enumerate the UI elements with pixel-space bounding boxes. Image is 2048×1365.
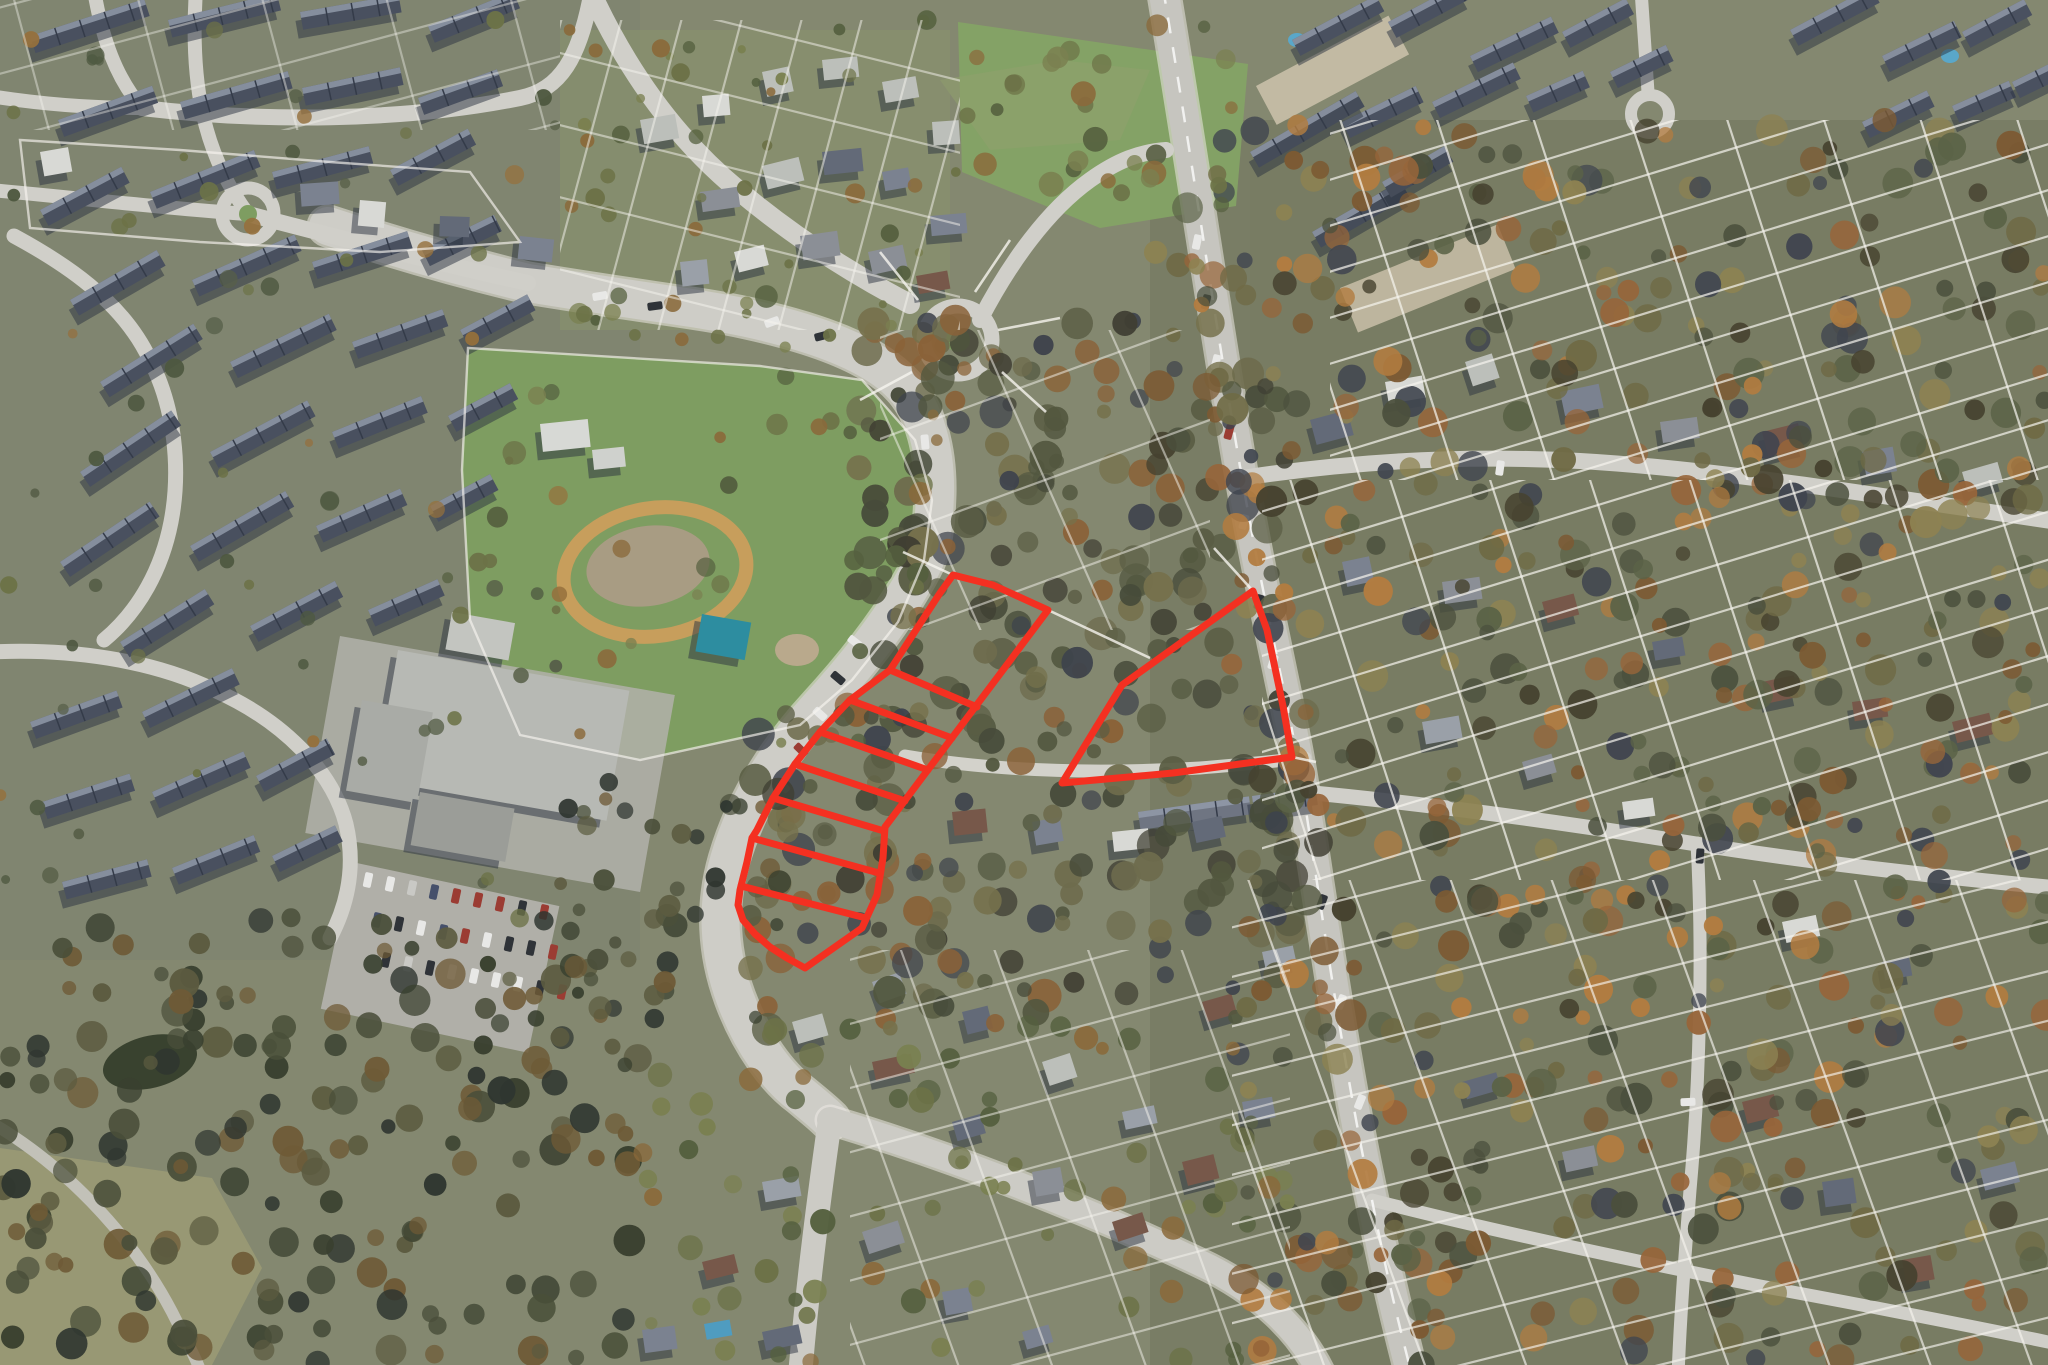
school-building (540, 419, 591, 452)
house-roof (952, 808, 988, 835)
house-roof (942, 1287, 973, 1315)
house-roof (1032, 1167, 1065, 1197)
house-roof (439, 216, 469, 237)
house-roof (680, 259, 709, 286)
house-roof (800, 231, 841, 261)
house-roof (822, 148, 864, 175)
house-roof (642, 1325, 678, 1353)
house-roof (932, 120, 960, 146)
house-roof (518, 236, 555, 262)
aerial-photo (0, 0, 2048, 1365)
house-roof (1822, 1178, 1857, 1208)
aerial-map-svg (0, 0, 2048, 1365)
house-roof (358, 200, 386, 228)
house-roof (300, 181, 340, 206)
house-roof (40, 147, 72, 176)
sand-area (775, 634, 819, 666)
house-roof (930, 213, 967, 236)
school-building (592, 447, 626, 470)
